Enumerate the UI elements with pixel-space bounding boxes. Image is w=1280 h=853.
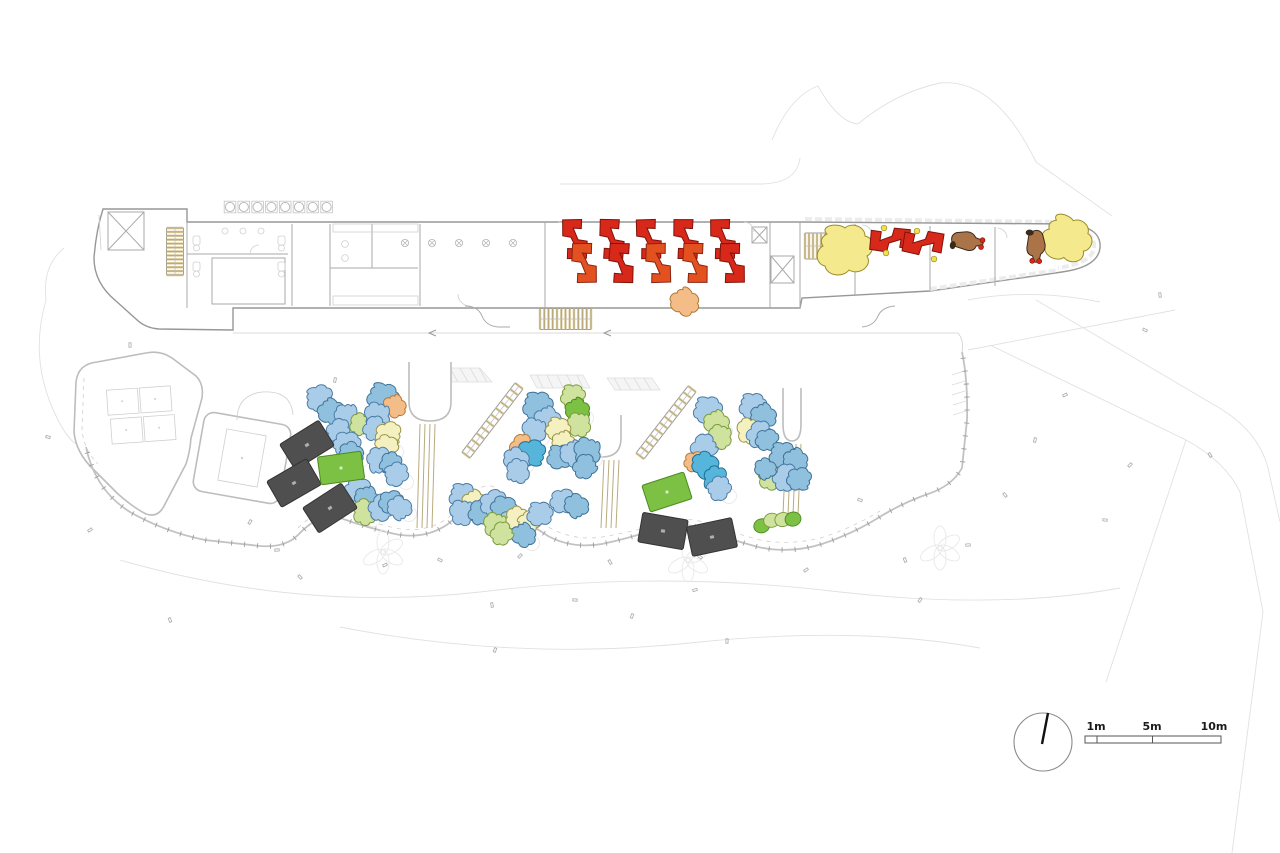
green-table <box>642 472 692 512</box>
survey-mark <box>129 343 131 347</box>
building-outline <box>94 209 1100 330</box>
survey-mark <box>88 528 93 532</box>
survey-mark <box>298 575 303 580</box>
survey-mark <box>858 498 863 501</box>
staircase <box>636 386 696 459</box>
play-blob <box>527 502 553 526</box>
north-arrow-icon <box>1014 713 1072 771</box>
survey-mark <box>1128 463 1133 468</box>
dark-mat <box>638 512 689 550</box>
survey-mark <box>1063 393 1068 397</box>
tree-outline <box>361 530 405 574</box>
kitchen-equipment-row <box>224 201 332 213</box>
floor-plan-page: 1m 5m 10m <box>0 0 1280 853</box>
survey-mark <box>438 558 443 562</box>
building <box>94 209 1100 330</box>
survey-mark <box>630 614 634 619</box>
survey-mark <box>1159 293 1162 298</box>
ramp-rails <box>417 424 435 528</box>
accent-dot <box>931 256 937 262</box>
survey-mark <box>248 520 252 525</box>
survey-mark <box>903 558 907 563</box>
survey-mark <box>168 618 172 623</box>
survey-mark <box>491 603 494 608</box>
play-blob <box>787 468 812 490</box>
survey-mark <box>334 378 337 383</box>
survey-mark <box>1208 453 1212 458</box>
scale-bar: 1m 5m 10m <box>1085 720 1227 743</box>
ramp-wedges <box>433 368 660 390</box>
scale-label-1m: 1m <box>1086 720 1105 733</box>
scale-label-5m: 5m <box>1142 720 1161 733</box>
survey-mark <box>1003 493 1008 498</box>
survey-mark <box>1033 438 1036 443</box>
survey-mark <box>1143 328 1148 332</box>
play-blob <box>507 459 529 484</box>
survey-mark <box>966 544 971 547</box>
caterpillar-bench <box>752 506 803 535</box>
tree-outline <box>918 526 962 570</box>
survey-mark <box>608 560 612 565</box>
dark-mat <box>686 518 737 557</box>
accent-dot <box>881 225 887 231</box>
scale-label-10m: 10m <box>1201 720 1228 733</box>
survey-mark <box>493 648 497 653</box>
ramp-rails <box>601 460 619 528</box>
survey-mark <box>1103 519 1108 522</box>
survey-mark <box>46 435 51 438</box>
survey-mark <box>804 568 809 572</box>
accent-dot <box>883 250 889 256</box>
floor-plan-canvas: 1m 5m 10m <box>0 0 1280 853</box>
survey-mark <box>275 549 280 552</box>
accent-dot <box>914 228 920 234</box>
staircase <box>167 228 184 275</box>
survey-mark <box>573 599 578 602</box>
staircase <box>540 309 591 330</box>
survey-mark <box>518 554 523 559</box>
green-table <box>317 451 364 485</box>
survey-mark <box>693 588 698 591</box>
survey-mark <box>383 563 388 567</box>
sand-play-blob <box>817 225 873 275</box>
